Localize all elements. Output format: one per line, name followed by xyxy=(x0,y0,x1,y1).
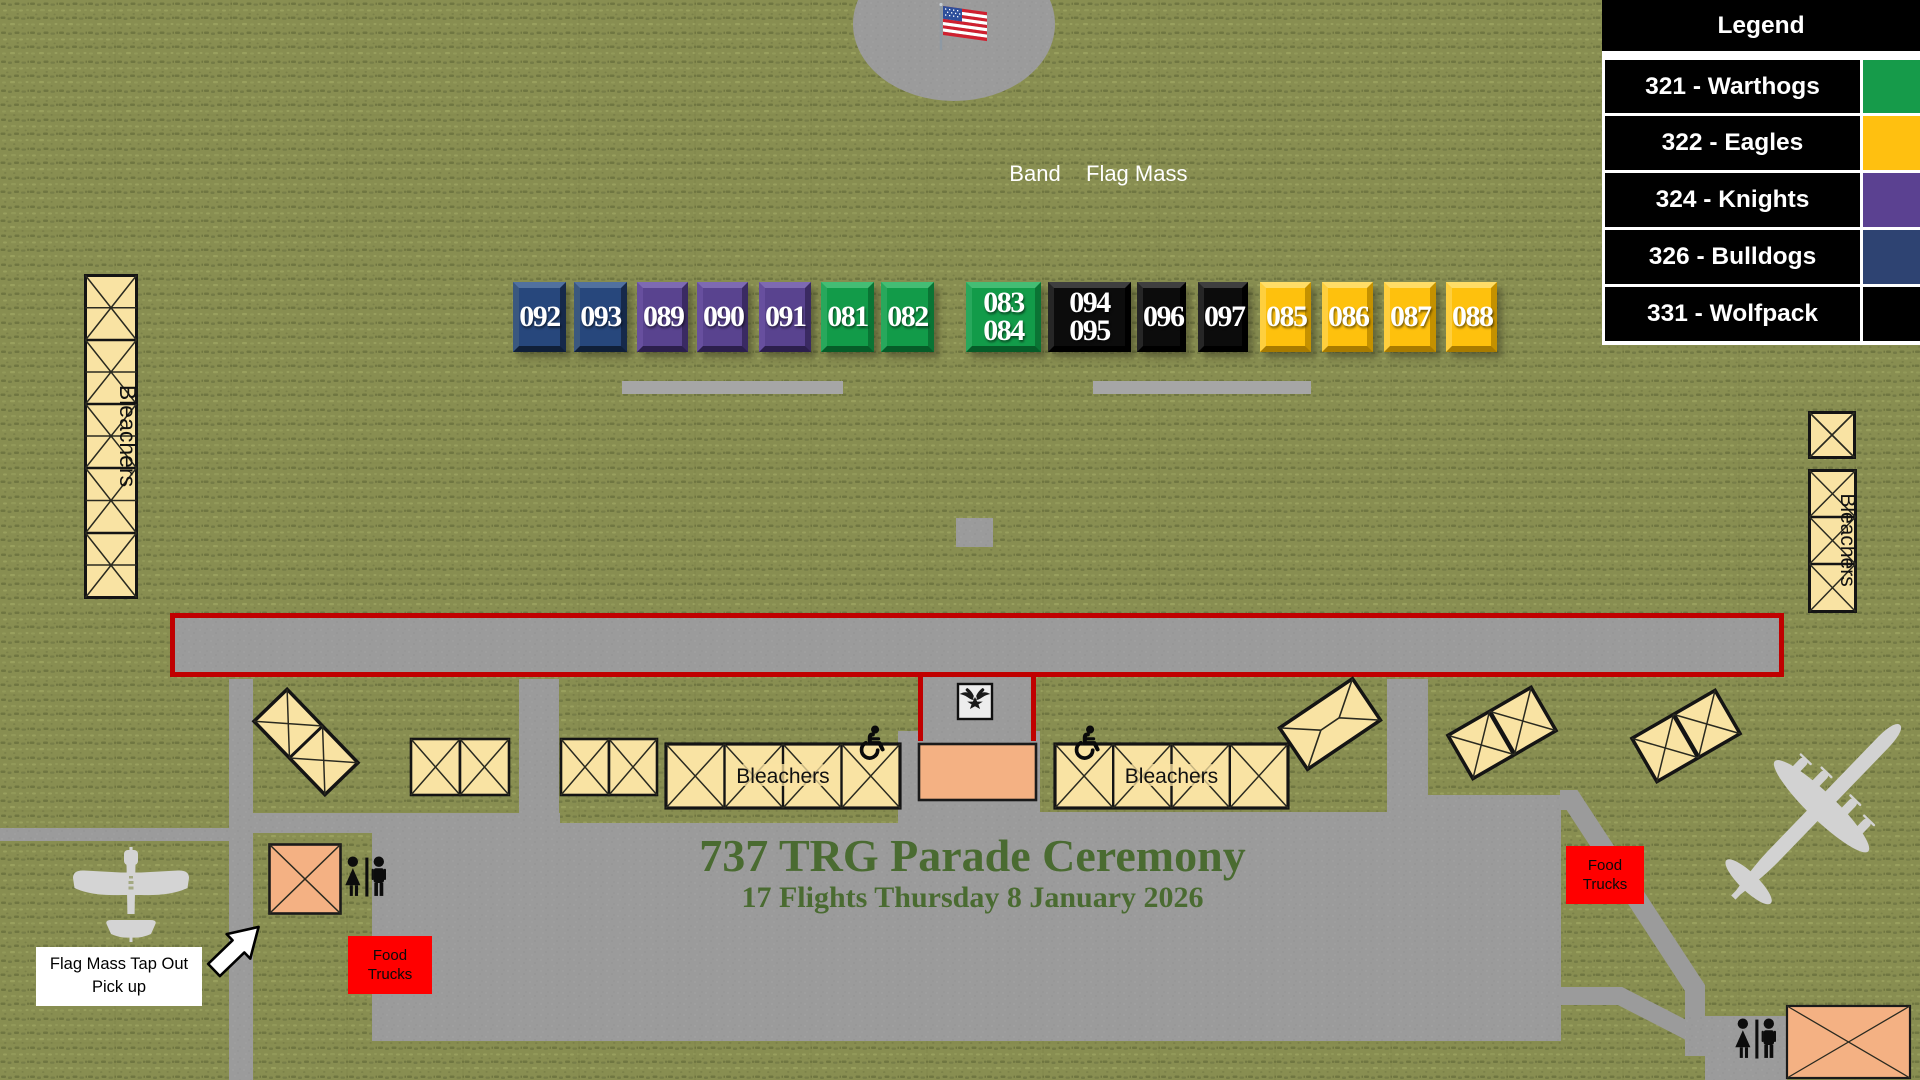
svg-text:Bleachers: Bleachers xyxy=(1125,765,1218,788)
svg-text:Bleachers: Bleachers xyxy=(115,385,141,487)
svg-text:Bleachers: Bleachers xyxy=(1836,493,1859,586)
svg-text:Bleachers: Bleachers xyxy=(736,765,829,788)
